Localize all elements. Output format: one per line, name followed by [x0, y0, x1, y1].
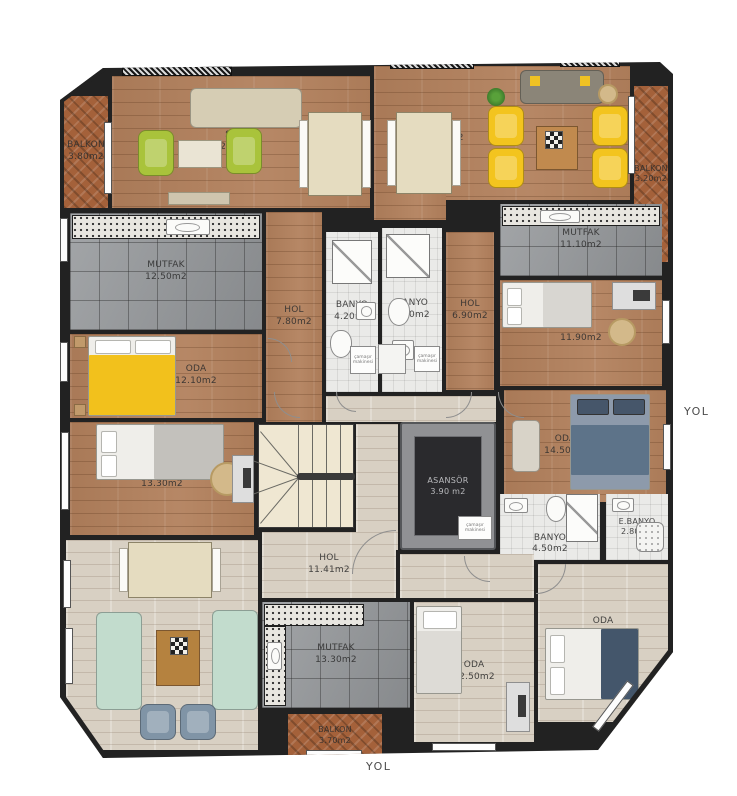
- washing-machine: çamaşır makinesi: [414, 346, 440, 372]
- tv-unit: [168, 192, 230, 205]
- street-label-bottom: YOL: [366, 760, 391, 773]
- room-label: HOL6.90m2: [446, 232, 494, 390]
- bed-blue: [570, 394, 650, 490]
- window: [63, 560, 71, 608]
- armchair-yellow: [488, 106, 524, 146]
- window: [663, 424, 671, 470]
- desk: [506, 682, 530, 732]
- dining-table: [128, 542, 212, 598]
- nightstand: [74, 404, 86, 416]
- armchair-blue: [180, 704, 216, 740]
- bathroom-sink: [612, 498, 634, 512]
- window: [65, 628, 73, 684]
- armchair-blue: [140, 704, 176, 740]
- window: [60, 218, 68, 262]
- floor-plan: BALKON3.80m2 SALON26.20m2 HOL7.80m2 MUTF…: [0, 0, 737, 796]
- room-balcony-top-left: BALKON3.80m2: [64, 96, 108, 208]
- shower: [386, 234, 430, 278]
- staircase: [258, 424, 354, 528]
- coffee-table-wood: [156, 630, 200, 686]
- toilet: [388, 298, 410, 326]
- sofa-pillow-yellow: [530, 76, 540, 86]
- window: [61, 432, 69, 510]
- bed-yellow: [88, 336, 176, 416]
- window: [628, 96, 635, 174]
- wall-hatch: [390, 60, 474, 69]
- lounge-chair: [512, 420, 540, 472]
- room-label: HOL7.80m2: [266, 212, 322, 422]
- kitchen-sink: [267, 642, 282, 670]
- bed-single: [416, 606, 462, 694]
- washing-machine: çamaşır makinesi: [350, 346, 376, 374]
- kitchen-counter: [264, 604, 364, 626]
- building-outline: BALKON3.80m2 SALON26.20m2 HOL7.80m2 MUTF…: [60, 62, 673, 762]
- wall-hatch: [560, 58, 620, 67]
- street-label-right: YOL: [684, 405, 709, 418]
- bathroom-sink: [356, 302, 376, 320]
- sofa-pillow-yellow: [580, 76, 590, 86]
- armchair-yellow: [488, 148, 524, 188]
- armchair-yellow: [592, 106, 628, 146]
- chess-board: [545, 131, 563, 149]
- basket: [598, 84, 618, 104]
- room-hall-left: HOL7.80m2: [266, 212, 322, 422]
- window: [432, 743, 496, 751]
- sofa-beige: [190, 88, 302, 128]
- armchair-green: [138, 130, 174, 176]
- kitchen-counter: [502, 206, 660, 226]
- wall-hatch: [122, 66, 232, 76]
- window: [104, 122, 112, 194]
- window: [662, 300, 670, 344]
- washing-machine: çamaşır makinesi: [458, 516, 492, 540]
- bed-white: [96, 424, 224, 480]
- sofa-mint: [212, 610, 258, 710]
- nightstand: [74, 336, 86, 348]
- armchair-green: [226, 128, 262, 174]
- stair-handrail: [297, 473, 355, 480]
- bathroom-sink: [504, 498, 528, 513]
- shower-tray: [636, 522, 664, 552]
- plant: [487, 88, 505, 106]
- door-niche: [378, 344, 406, 374]
- bed-white: [502, 282, 592, 328]
- coffee-table: [178, 140, 222, 168]
- window: [60, 342, 68, 382]
- room-hall-center-right: HOL6.90m2: [446, 232, 494, 390]
- desk: [232, 455, 254, 503]
- room-label: BALKON3.80m2: [64, 96, 108, 208]
- dining-table: [396, 112, 452, 194]
- kitchen-sink: [166, 219, 210, 235]
- sofa-mint: [96, 612, 142, 710]
- dining-table: [308, 112, 362, 196]
- shower: [566, 494, 598, 542]
- room-salon-top-right-ext: [374, 192, 446, 220]
- kitchen-sink: [540, 210, 580, 223]
- armchair-yellow: [592, 148, 628, 188]
- toilet: [546, 496, 566, 522]
- desk: [612, 282, 656, 310]
- toilet: [330, 330, 352, 358]
- chess-table: [536, 126, 578, 170]
- chess-board: [170, 637, 188, 655]
- door-arc: [498, 392, 524, 418]
- rug: [608, 318, 636, 346]
- shower: [332, 240, 372, 284]
- window: [306, 750, 362, 757]
